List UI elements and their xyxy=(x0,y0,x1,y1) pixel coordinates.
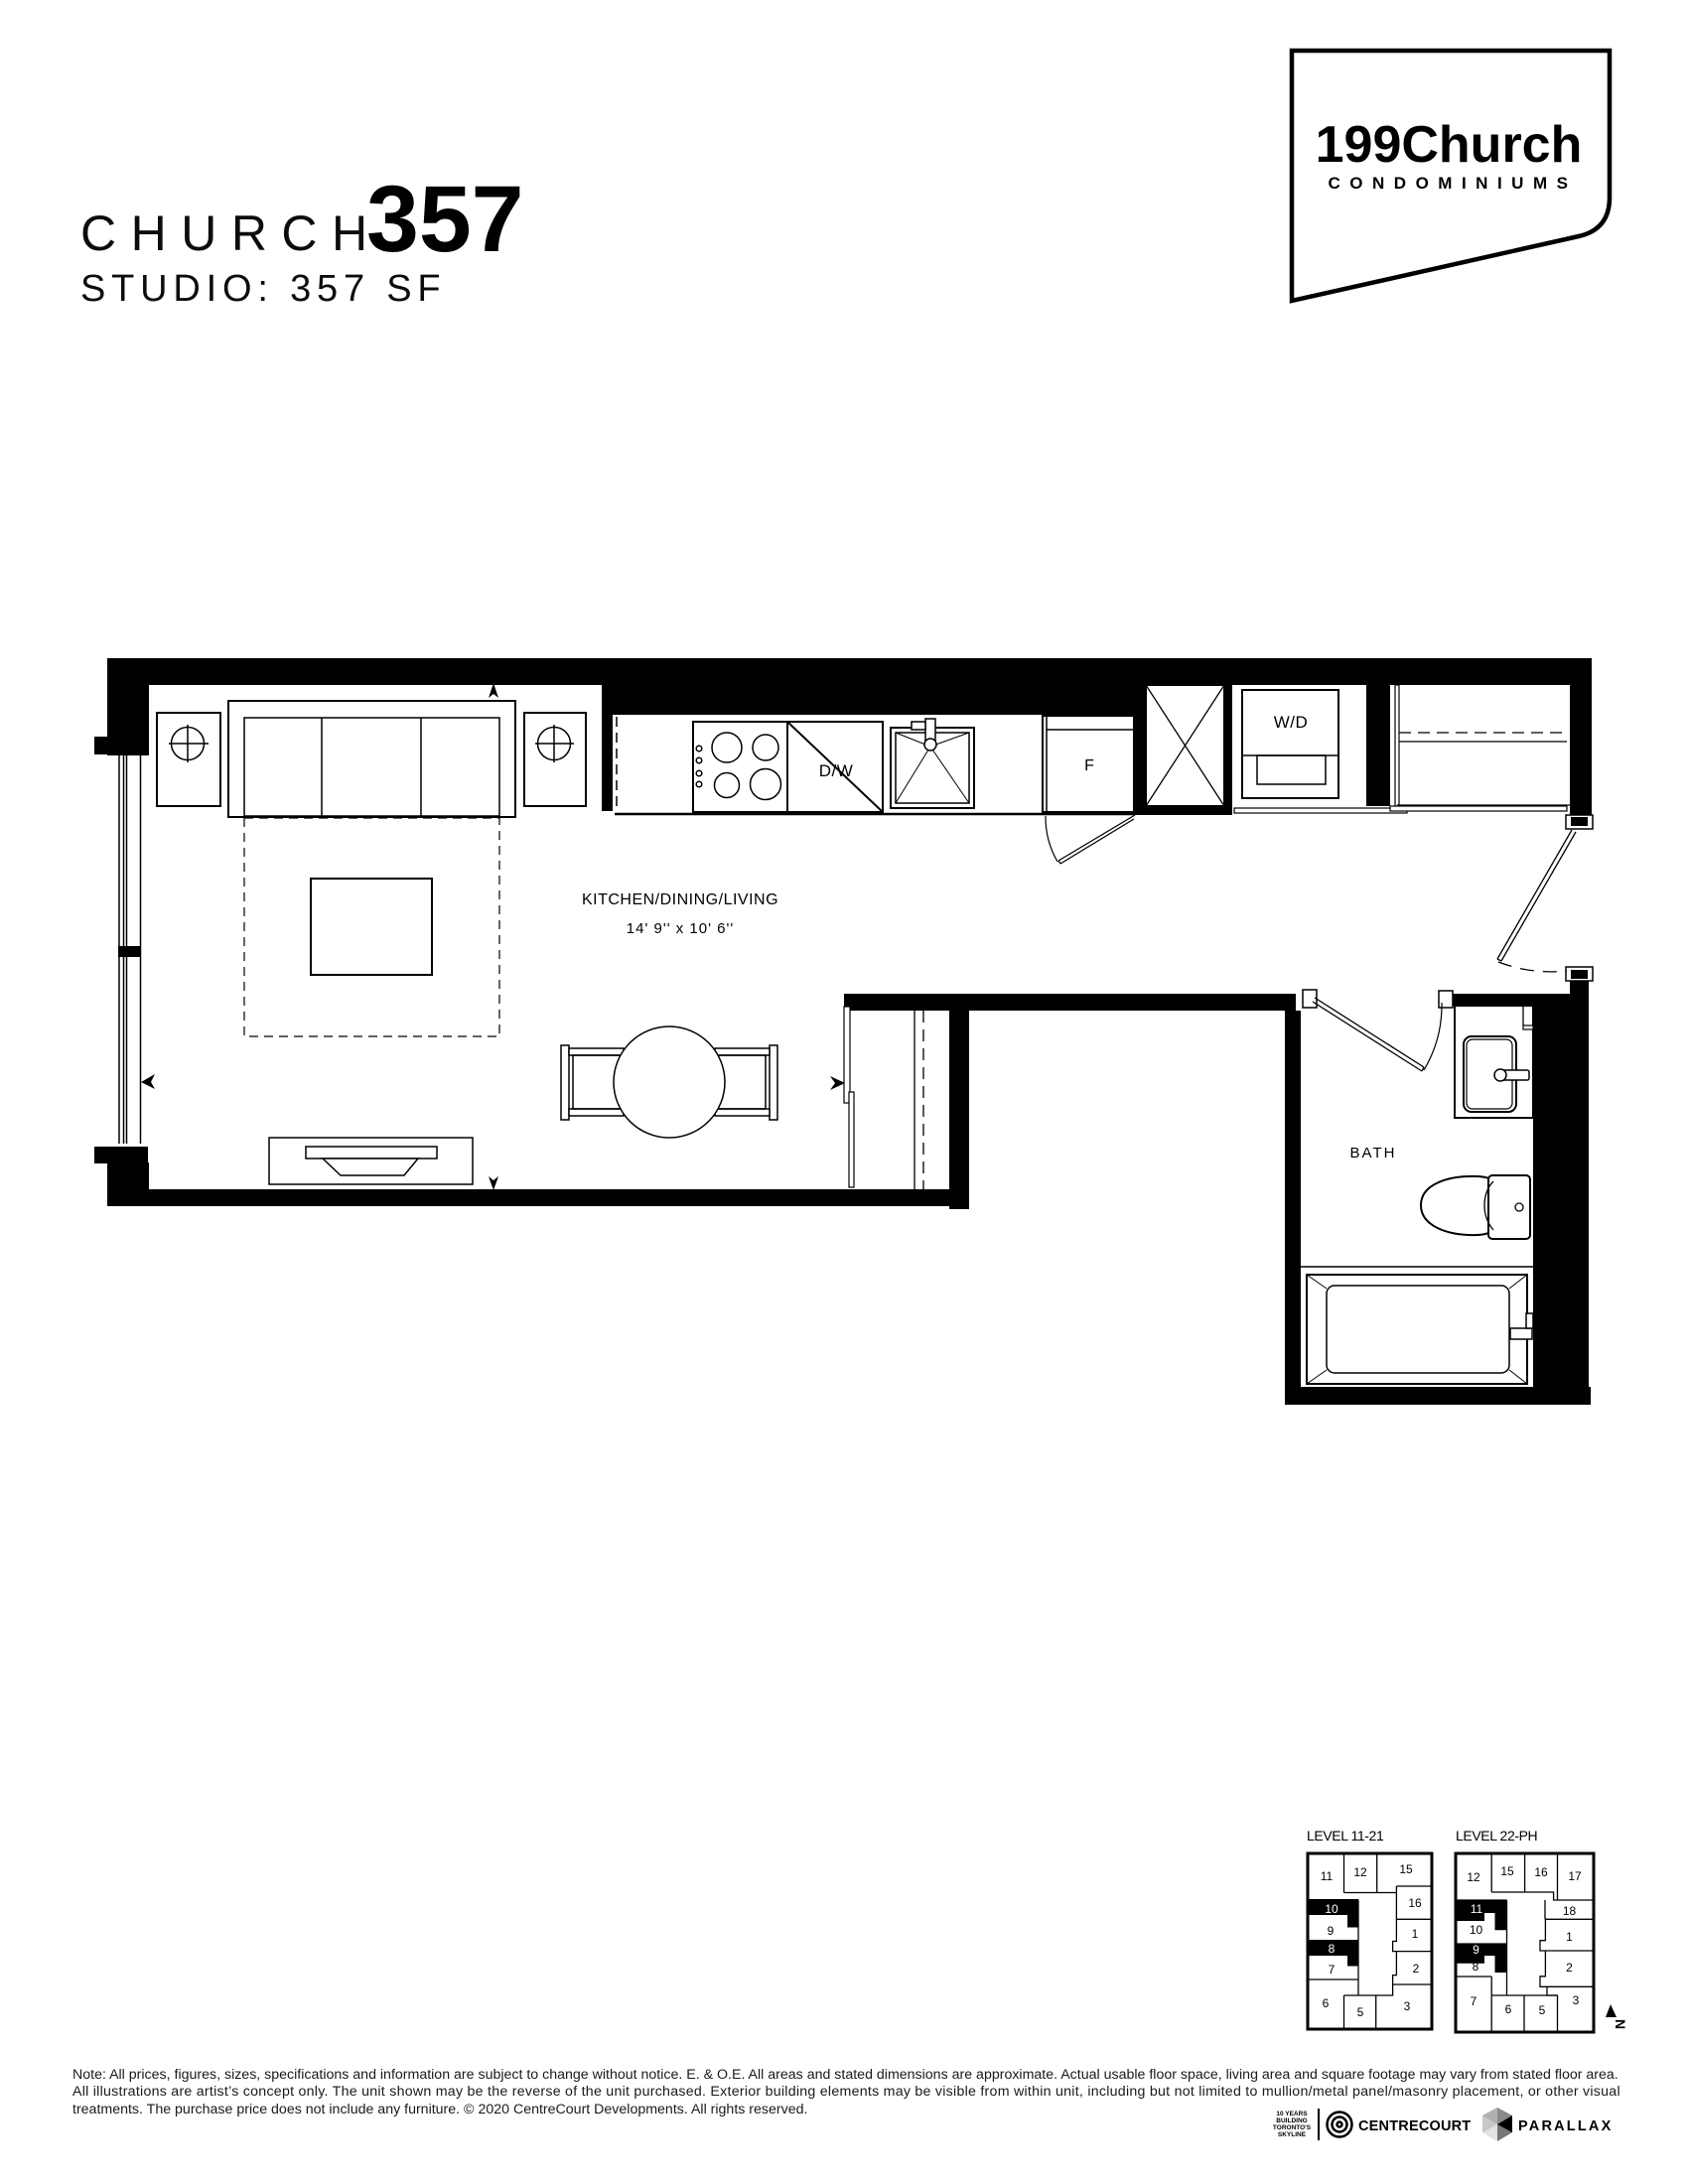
svg-text:BUILDING: BUILDING xyxy=(1276,2117,1307,2124)
svg-text:17: 17 xyxy=(1568,1869,1582,1883)
svg-text:15: 15 xyxy=(1500,1864,1514,1878)
svg-text:2: 2 xyxy=(1566,1961,1573,1975)
svg-text:CONDOMINIUMS: CONDOMINIUMS xyxy=(1329,174,1578,193)
svg-text:TORONTO'S: TORONTO'S xyxy=(1273,2124,1312,2131)
svg-text:1: 1 xyxy=(1566,1930,1573,1944)
svg-text:BATH: BATH xyxy=(1350,1145,1397,1161)
svg-text:12: 12 xyxy=(1353,1865,1367,1879)
svg-text:3: 3 xyxy=(1404,1999,1411,2013)
svg-text:KITCHEN/DINING/LIVING: KITCHEN/DINING/LIVING xyxy=(582,891,778,908)
svg-text:10: 10 xyxy=(1325,1902,1338,1916)
svg-text:6: 6 xyxy=(1323,1996,1330,2010)
svg-text:9: 9 xyxy=(1328,1924,1335,1938)
svg-text:CENTRECOURT: CENTRECOURT xyxy=(1358,2118,1471,2134)
svg-text:12: 12 xyxy=(1467,1870,1480,1884)
svg-text:SKYLINE: SKYLINE xyxy=(1278,2131,1307,2138)
svg-text:CHURCH: CHURCH xyxy=(80,205,382,261)
svg-text:8: 8 xyxy=(1329,1942,1336,1956)
svg-text:All illustrations are artist’s: All illustrations are artist’s concept o… xyxy=(72,2084,1620,2100)
svg-text:8: 8 xyxy=(1473,1960,1479,1974)
svg-text:16: 16 xyxy=(1408,1896,1422,1910)
svg-text:18: 18 xyxy=(1563,1904,1577,1918)
svg-text:LEVEL 11-21: LEVEL 11-21 xyxy=(1307,1828,1384,1843)
svg-text:14' 9'' x 10' 6'': 14' 9'' x 10' 6'' xyxy=(627,920,734,937)
svg-text:PARALLAX: PARALLAX xyxy=(1518,2118,1613,2134)
svg-text:10: 10 xyxy=(1470,1923,1483,1937)
svg-text:3: 3 xyxy=(1573,1993,1580,2007)
svg-text:9: 9 xyxy=(1473,1943,1479,1957)
svg-text:16: 16 xyxy=(1534,1865,1548,1879)
svg-text:1: 1 xyxy=(1412,1927,1419,1941)
svg-text:11: 11 xyxy=(1471,1902,1483,1916)
svg-text:5: 5 xyxy=(1539,2003,1546,2017)
svg-text:F: F xyxy=(1084,757,1094,774)
svg-text:6: 6 xyxy=(1505,2002,1512,2016)
svg-text:treatments. The purchase price: treatments. The purchase price does not … xyxy=(72,2102,807,2117)
svg-text:15: 15 xyxy=(1399,1862,1413,1876)
svg-text:7: 7 xyxy=(1471,1994,1477,2008)
svg-text:11: 11 xyxy=(1321,1869,1334,1883)
svg-text:7: 7 xyxy=(1329,1963,1336,1977)
svg-text:W/D: W/D xyxy=(1274,713,1309,732)
svg-text:Note: All prices, figures, siz: Note: All prices, figures, sizes, specif… xyxy=(72,2067,1618,2083)
svg-text:5: 5 xyxy=(1357,2005,1364,2019)
svg-text:D/W: D/W xyxy=(819,761,854,780)
svg-text:STUDIO: 357 SF: STUDIO: 357 SF xyxy=(80,268,446,310)
svg-text:LEVEL 22-PH: LEVEL 22-PH xyxy=(1456,1828,1537,1843)
svg-text:357: 357 xyxy=(366,167,524,272)
svg-text:N: N xyxy=(1613,2019,1628,2029)
svg-text:2: 2 xyxy=(1413,1962,1420,1976)
svg-text:199Church: 199Church xyxy=(1316,116,1583,174)
svg-text:10 YEARS: 10 YEARS xyxy=(1276,2111,1308,2117)
